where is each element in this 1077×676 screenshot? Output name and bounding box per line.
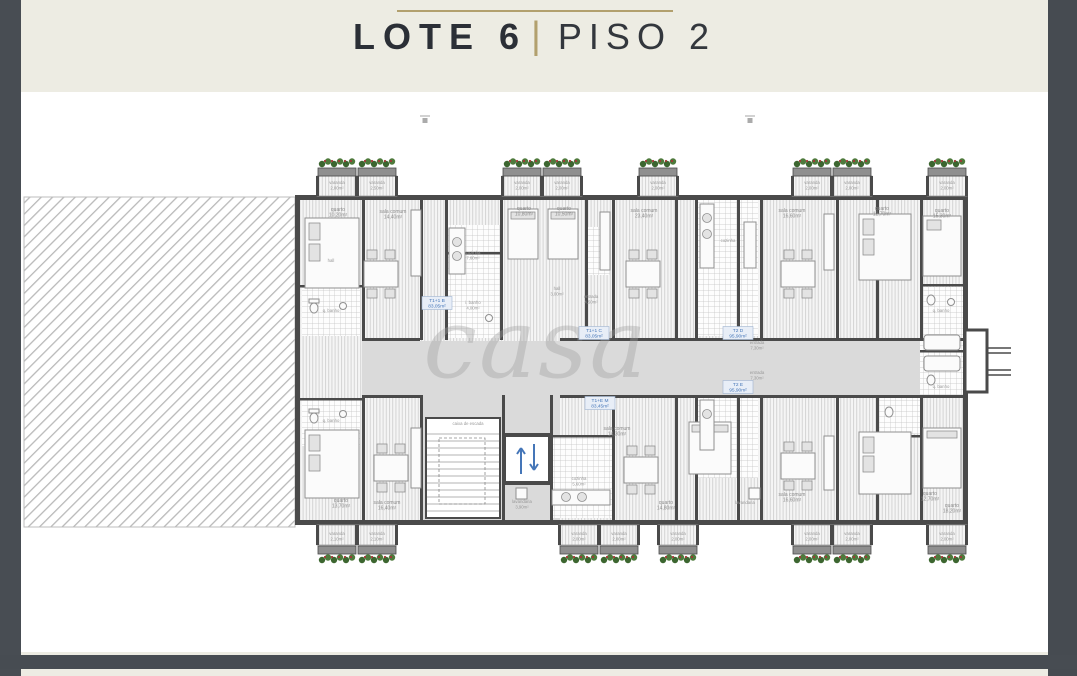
plant-flower-icon bbox=[934, 556, 936, 558]
room-label: hall bbox=[328, 258, 335, 263]
plant-foliage-icon bbox=[574, 158, 580, 164]
plant-flower-icon bbox=[384, 160, 386, 162]
plant-flower-icon bbox=[941, 160, 943, 162]
plant-flower-icon bbox=[859, 160, 861, 162]
plant-flower-icon bbox=[859, 556, 861, 558]
plant-foliage-icon bbox=[383, 161, 389, 167]
plant-flower-icon bbox=[672, 556, 674, 558]
plant-foliage-icon bbox=[337, 158, 343, 164]
plant-flower-icon bbox=[350, 160, 352, 162]
plant-foliage-icon bbox=[658, 158, 664, 164]
room-label: cozinha7,60m² bbox=[466, 250, 481, 261]
planter bbox=[793, 546, 831, 563]
room-label: q. banho bbox=[933, 308, 950, 313]
stairwell bbox=[426, 418, 500, 518]
planter bbox=[543, 158, 581, 176]
planter bbox=[358, 546, 396, 563]
bed bbox=[923, 216, 961, 276]
plant-flower-icon bbox=[324, 160, 326, 162]
room-label: varanda2,00m² bbox=[329, 180, 345, 191]
plant-foliage-icon bbox=[377, 158, 383, 164]
planter bbox=[659, 546, 697, 563]
plant-flower-icon bbox=[344, 556, 346, 558]
bed bbox=[859, 214, 911, 280]
plant-foliage-icon bbox=[818, 161, 824, 167]
plant-foliage-icon bbox=[585, 557, 591, 563]
plant-flower-icon bbox=[371, 160, 373, 162]
planter bbox=[833, 158, 871, 176]
plant-foliage-icon bbox=[690, 554, 696, 560]
right-entrance-porch bbox=[965, 330, 1011, 392]
plant-flower-icon bbox=[324, 556, 326, 558]
title-piso: PISO 2 bbox=[558, 17, 716, 57]
plant-flower-icon bbox=[390, 556, 392, 558]
plant-flower-icon bbox=[960, 556, 962, 558]
plant-foliage-icon bbox=[389, 554, 395, 560]
plant-flower-icon bbox=[685, 556, 687, 558]
svg-text:T1+E M83,45m²: T1+E M83,45m² bbox=[591, 398, 609, 410]
plant-flower-icon bbox=[948, 160, 950, 162]
apartment-type-tag: T1+1 B83,05m² bbox=[422, 297, 452, 310]
floor-plan-drawing: casa varanda2,00m²varanda2,50m²varanda2,… bbox=[21, 92, 1048, 652]
room-label: q. banho bbox=[933, 384, 950, 389]
plant-foliage-icon bbox=[959, 554, 965, 560]
apartment-type-tag: T2 D95,90m² bbox=[723, 327, 753, 340]
plant-flower-icon bbox=[813, 556, 815, 558]
plant-flower-icon bbox=[632, 556, 634, 558]
plant-foliage-icon bbox=[858, 557, 864, 563]
plant-flower-icon bbox=[331, 556, 333, 558]
plant-flower-icon bbox=[652, 160, 654, 162]
watermark: casa bbox=[423, 288, 649, 400]
room-label: quarto10,50m² bbox=[555, 206, 574, 218]
section-marker-icon bbox=[745, 116, 755, 123]
planter bbox=[600, 546, 638, 563]
plant-foliage-icon bbox=[625, 557, 631, 563]
plant-flower-icon bbox=[819, 160, 821, 162]
svg-text:T1+1 B83,05m²: T1+1 B83,05m² bbox=[428, 298, 446, 310]
bed bbox=[859, 432, 911, 494]
plant-foliage-icon bbox=[818, 557, 824, 563]
plant-flower-icon bbox=[819, 556, 821, 558]
wardrobe bbox=[824, 436, 834, 490]
room-label: quarto12,70m² bbox=[921, 491, 940, 503]
plant-foliage-icon bbox=[389, 158, 395, 164]
plant-flower-icon bbox=[671, 160, 673, 162]
plant-flower-icon bbox=[566, 556, 568, 558]
room-label: cozinha5,60m² bbox=[572, 476, 587, 487]
plant-foliage-icon bbox=[858, 161, 864, 167]
bed bbox=[923, 428, 961, 488]
planter bbox=[833, 546, 871, 563]
plant-flower-icon bbox=[865, 556, 867, 558]
room-label: cozinha bbox=[721, 238, 736, 243]
room-label: varanda2,50m² bbox=[369, 180, 385, 191]
plant-flower-icon bbox=[948, 556, 950, 558]
apartment-type-tag: T1+E M83,45m² bbox=[585, 397, 615, 410]
plant-flower-icon bbox=[665, 556, 667, 558]
room-label: varanda2,10m² bbox=[329, 531, 345, 542]
plant-flower-icon bbox=[799, 160, 801, 162]
plant-flower-icon bbox=[954, 160, 956, 162]
bathtub bbox=[924, 335, 960, 350]
plant-flower-icon bbox=[626, 556, 628, 558]
plant-foliage-icon bbox=[824, 158, 830, 164]
planter bbox=[793, 158, 831, 176]
room-label: i. banho4,00m² bbox=[465, 300, 481, 311]
planter bbox=[318, 158, 356, 176]
plant-flower-icon bbox=[338, 160, 340, 162]
plant-foliage-icon bbox=[664, 161, 670, 167]
footer-band bbox=[0, 655, 1077, 669]
planter bbox=[503, 158, 541, 176]
plant-flower-icon bbox=[645, 160, 647, 162]
plant-foliage-icon bbox=[343, 557, 349, 563]
plant-flower-icon bbox=[839, 556, 841, 558]
room-label: varanda2,00m² bbox=[939, 180, 955, 191]
plant-flower-icon bbox=[384, 556, 386, 558]
header-accent-line bbox=[397, 10, 673, 12]
planter bbox=[358, 158, 396, 176]
section-markers bbox=[420, 116, 755, 123]
right-border bbox=[1048, 0, 1077, 676]
plant-flower-icon bbox=[344, 160, 346, 162]
room-label: varanda2,00m² bbox=[844, 180, 860, 191]
plant-foliage-icon bbox=[864, 158, 870, 164]
bathtub bbox=[924, 356, 960, 371]
room-label: varanda2,00m² bbox=[650, 180, 666, 191]
svg-text:T1+1 C83,05m²: T1+1 C83,05m² bbox=[585, 328, 603, 340]
plant-flower-icon bbox=[529, 160, 531, 162]
planter bbox=[928, 546, 966, 563]
room-label: varanda2,00m² bbox=[844, 531, 860, 542]
plant-foliage-icon bbox=[383, 557, 389, 563]
plant-flower-icon bbox=[569, 160, 571, 162]
plant-flower-icon bbox=[535, 160, 537, 162]
plant-foliage-icon bbox=[349, 554, 355, 560]
room-label: varanda2,00m² bbox=[571, 531, 587, 542]
plant-flower-icon bbox=[606, 556, 608, 558]
plant-flower-icon bbox=[390, 160, 392, 162]
room-label: varanda2,00m² bbox=[939, 531, 955, 542]
section-marker-icon bbox=[420, 116, 430, 123]
plant-foliage-icon bbox=[534, 158, 540, 164]
room-label: varanda2,00m² bbox=[670, 531, 686, 542]
room-label: lavandaria bbox=[735, 500, 755, 505]
plant-foliage-icon bbox=[591, 554, 597, 560]
room-label: quarto15,30m² bbox=[933, 208, 952, 220]
plant-foliage-icon bbox=[337, 554, 343, 560]
room-label: q. banho bbox=[323, 308, 340, 313]
plant-foliage-icon bbox=[852, 158, 858, 164]
room-label: quarto10,20m² bbox=[329, 207, 348, 219]
plant-foliage-icon bbox=[377, 554, 383, 560]
room-label: entrada4,50m² bbox=[584, 294, 599, 305]
plant-foliage-icon bbox=[812, 158, 818, 164]
plant-flower-icon bbox=[350, 556, 352, 558]
room-label: quarto10,80m² bbox=[515, 206, 534, 218]
floor-plan-panel: casa varanda2,00m²varanda2,50m²varanda2,… bbox=[21, 92, 1048, 652]
room-label: varanda2,10m² bbox=[369, 531, 385, 542]
left-border bbox=[0, 0, 21, 676]
plant-flower-icon bbox=[941, 556, 943, 558]
plant-foliage-icon bbox=[864, 554, 870, 560]
adjacent-building-hatch bbox=[24, 197, 295, 527]
plant-flower-icon bbox=[846, 160, 848, 162]
room-label: varanda2,00m² bbox=[514, 180, 530, 191]
plant-foliage-icon bbox=[947, 554, 953, 560]
plant-flower-icon bbox=[613, 556, 615, 558]
plant-foliage-icon bbox=[619, 554, 625, 560]
plant-flower-icon bbox=[806, 160, 808, 162]
plant-foliage-icon bbox=[959, 158, 965, 164]
plant-flower-icon bbox=[813, 160, 815, 162]
plant-flower-icon bbox=[371, 556, 373, 558]
plant-flower-icon bbox=[580, 556, 582, 558]
plant-flower-icon bbox=[839, 160, 841, 162]
plant-flower-icon bbox=[338, 556, 340, 558]
plant-foliage-icon bbox=[631, 554, 637, 560]
plant-foliage-icon bbox=[349, 158, 355, 164]
plant-flower-icon bbox=[516, 160, 518, 162]
room-label: caixa de escada bbox=[452, 421, 484, 426]
wardrobe bbox=[600, 212, 610, 270]
plant-foliage-icon bbox=[953, 161, 959, 167]
bed bbox=[305, 218, 359, 288]
plant-flower-icon bbox=[659, 160, 661, 162]
planter bbox=[928, 158, 966, 176]
bed bbox=[305, 430, 359, 498]
room-label: entrada7,30m² bbox=[750, 370, 765, 381]
plant-foliage-icon bbox=[684, 557, 690, 563]
plant-flower-icon bbox=[853, 160, 855, 162]
room-label: varanda2,00m² bbox=[554, 180, 570, 191]
plant-foliage-icon bbox=[528, 161, 534, 167]
plant-foliage-icon bbox=[343, 161, 349, 167]
plant-flower-icon bbox=[586, 556, 588, 558]
room-label: quarto13,70m² bbox=[332, 498, 351, 510]
plant-flower-icon bbox=[846, 556, 848, 558]
plant-foliage-icon bbox=[953, 557, 959, 563]
plant-flower-icon bbox=[934, 160, 936, 162]
plant-foliage-icon bbox=[522, 158, 528, 164]
plant-flower-icon bbox=[665, 160, 667, 162]
plant-foliage-icon bbox=[947, 158, 953, 164]
wardrobe bbox=[411, 428, 421, 488]
plant-flower-icon bbox=[853, 556, 855, 558]
plant-flower-icon bbox=[691, 556, 693, 558]
plant-foliage-icon bbox=[670, 158, 676, 164]
plant-foliage-icon bbox=[852, 554, 858, 560]
room-label: entrada7,30m² bbox=[750, 340, 765, 351]
plant-flower-icon bbox=[509, 160, 511, 162]
wardrobe bbox=[411, 210, 421, 276]
plant-foliage-icon bbox=[562, 158, 568, 164]
plant-flower-icon bbox=[954, 556, 956, 558]
page-title: LOTE 6 | PISO 2 bbox=[353, 16, 716, 58]
planter bbox=[318, 546, 356, 563]
apartment-type-tag: T2 E95,90m² bbox=[723, 381, 753, 394]
plant-flower-icon bbox=[556, 160, 558, 162]
plant-flower-icon bbox=[592, 556, 594, 558]
plant-flower-icon bbox=[378, 556, 380, 558]
brochure-page: { "header": { "title_bold": "LOTE 6", "d… bbox=[0, 0, 1077, 676]
plant-foliage-icon bbox=[568, 161, 574, 167]
plant-flower-icon bbox=[679, 556, 681, 558]
plant-foliage-icon bbox=[812, 554, 818, 560]
room-label: quarto18,20m² bbox=[943, 503, 962, 515]
plant-foliage-icon bbox=[678, 554, 684, 560]
page-header: LOTE 6 | PISO 2 bbox=[21, 0, 1048, 92]
room-label: varanda2,00m² bbox=[804, 531, 820, 542]
plant-foliage-icon bbox=[579, 554, 585, 560]
plant-flower-icon bbox=[378, 160, 380, 162]
title-lote: LOTE 6 bbox=[353, 17, 527, 57]
plant-flower-icon bbox=[575, 160, 577, 162]
plant-flower-icon bbox=[960, 160, 962, 162]
plant-flower-icon bbox=[620, 556, 622, 558]
plant-flower-icon bbox=[364, 556, 366, 558]
room-label: quarto14,80m² bbox=[657, 500, 676, 512]
title-divider: | bbox=[531, 16, 548, 58]
plant-flower-icon bbox=[364, 160, 366, 162]
plant-flower-icon bbox=[825, 556, 827, 558]
plant-flower-icon bbox=[865, 160, 867, 162]
planter bbox=[639, 158, 677, 176]
room-label: varanda2,00m² bbox=[804, 180, 820, 191]
plant-foliage-icon bbox=[824, 554, 830, 560]
plant-flower-icon bbox=[825, 160, 827, 162]
planter bbox=[560, 546, 598, 563]
room-label: q. banho bbox=[323, 418, 340, 423]
elevator bbox=[504, 435, 550, 483]
plant-flower-icon bbox=[331, 160, 333, 162]
plant-flower-icon bbox=[523, 160, 525, 162]
plant-flower-icon bbox=[573, 556, 575, 558]
plant-flower-icon bbox=[799, 556, 801, 558]
plant-flower-icon bbox=[563, 160, 565, 162]
plant-flower-icon bbox=[549, 160, 551, 162]
wardrobe bbox=[824, 214, 834, 270]
room-label: varanda2,00m² bbox=[611, 531, 627, 542]
room-label: quarto12,70m² bbox=[873, 206, 892, 218]
apartment-type-tag: T1+1 C83,05m² bbox=[579, 327, 609, 340]
plant-flower-icon bbox=[806, 556, 808, 558]
